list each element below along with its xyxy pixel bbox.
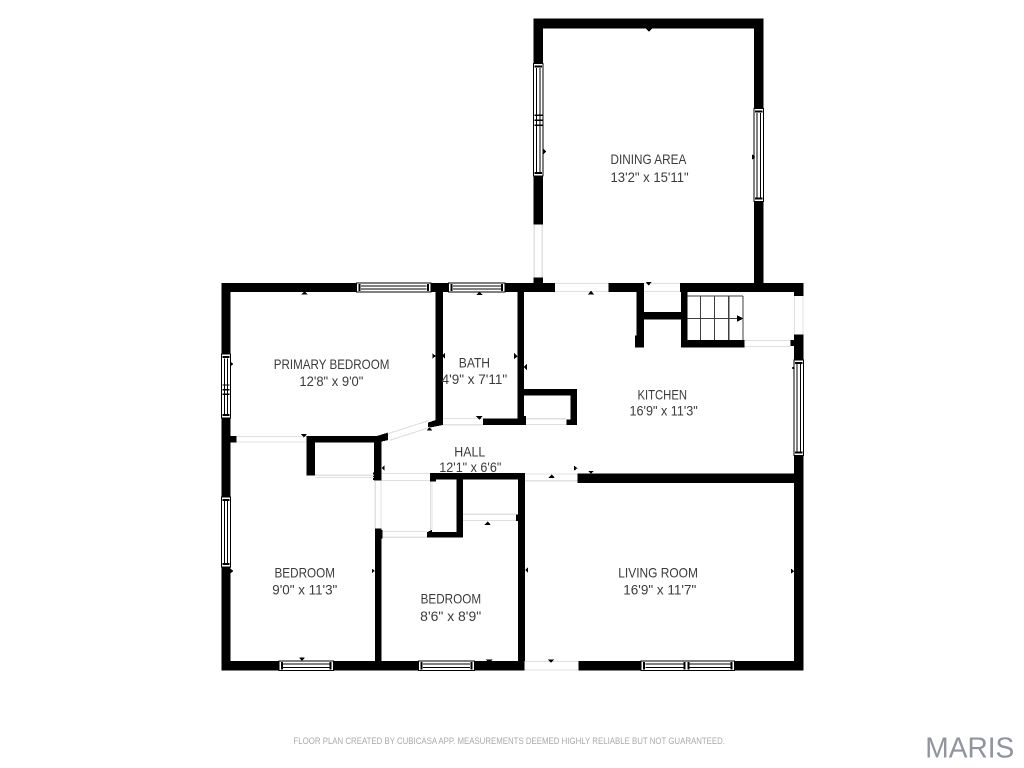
svg-text:KITCHEN: KITCHEN — [638, 387, 688, 402]
svg-text:16'9" x 11'3": 16'9" x 11'3" — [630, 403, 698, 418]
svg-text:BEDROOM: BEDROOM — [421, 592, 482, 607]
svg-text:BEDROOM: BEDROOM — [275, 566, 336, 581]
svg-text:DINING AREA: DINING AREA — [611, 152, 687, 167]
svg-text:8'6" x 8'9": 8'6" x 8'9" — [420, 609, 481, 624]
svg-text:9'0" x 11'3": 9'0" x 11'3" — [272, 583, 337, 598]
svg-text:MARIS: MARIS — [925, 733, 1014, 765]
svg-text:16'9" x 11'7": 16'9" x 11'7" — [623, 583, 696, 598]
svg-text:BATH: BATH — [459, 356, 490, 371]
svg-text:FLOOR PLAN CREATED BY CUBICASA: FLOOR PLAN CREATED BY CUBICASA APP. MEAS… — [294, 736, 726, 746]
svg-text:LIVING ROOM: LIVING ROOM — [618, 566, 698, 581]
svg-text:PRIMARY BEDROOM: PRIMARY BEDROOM — [274, 357, 390, 372]
svg-text:12'8" x 9'0": 12'8" x 9'0" — [299, 374, 363, 389]
svg-text:4'9" x 7'11": 4'9" x 7'11" — [442, 372, 508, 387]
svg-text:13'2" x 15'11": 13'2" x 15'11" — [611, 170, 689, 185]
svg-text:HALL: HALL — [454, 444, 485, 459]
svg-text:12'1" x 6'6": 12'1" x 6'6" — [439, 460, 501, 475]
